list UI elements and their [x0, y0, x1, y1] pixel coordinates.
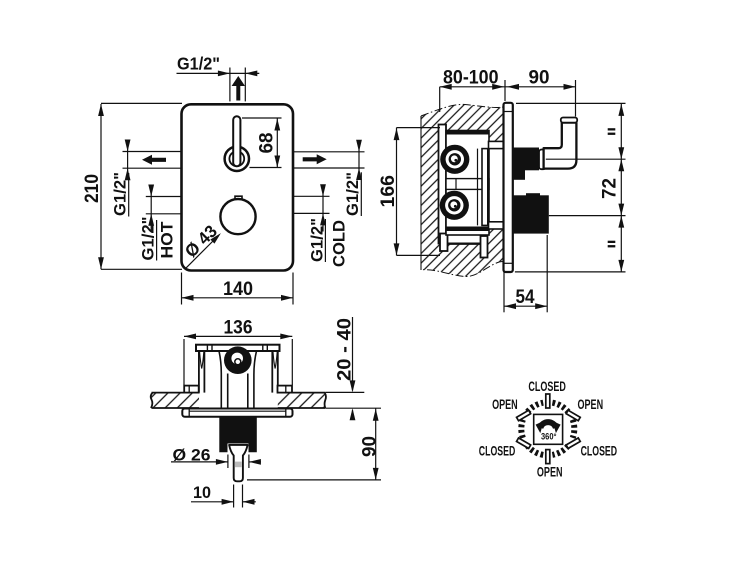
svg-text:80-100: 80-100 [443, 68, 499, 89]
svg-text:90: 90 [529, 68, 550, 89]
svg-text:140: 140 [223, 279, 253, 300]
svg-text:G1/2": G1/2" [307, 218, 326, 262]
svg-text:72: 72 [600, 178, 621, 199]
svg-text:20 - 40: 20 - 40 [335, 318, 356, 381]
svg-text:G1/2": G1/2" [111, 172, 130, 216]
svg-text:HOT: HOT [158, 221, 177, 259]
svg-text:G1/2": G1/2" [177, 54, 220, 74]
svg-text:OPEN: OPEN [492, 397, 518, 412]
svg-text:G1/2": G1/2" [139, 217, 158, 261]
svg-text:G1/2": G1/2" [343, 172, 362, 216]
svg-text:CLOSED: CLOSED [479, 443, 516, 458]
svg-text:OPEN: OPEN [578, 397, 604, 412]
svg-text:136: 136 [224, 318, 253, 339]
svg-text:10: 10 [193, 484, 211, 502]
svg-text:OPEN: OPEN [537, 464, 563, 479]
svg-text:54: 54 [516, 287, 535, 308]
svg-text:90: 90 [360, 436, 381, 457]
svg-text:68: 68 [257, 133, 278, 154]
svg-text:166: 166 [378, 175, 399, 208]
svg-text:CLOSED: CLOSED [528, 379, 566, 394]
svg-text:COLD: COLD [330, 220, 349, 267]
svg-text:360°: 360° [541, 432, 557, 443]
svg-text:210: 210 [82, 174, 103, 203]
svg-text:CLOSED: CLOSED [581, 443, 618, 458]
svg-text:Ø 26: Ø 26 [173, 446, 211, 464]
